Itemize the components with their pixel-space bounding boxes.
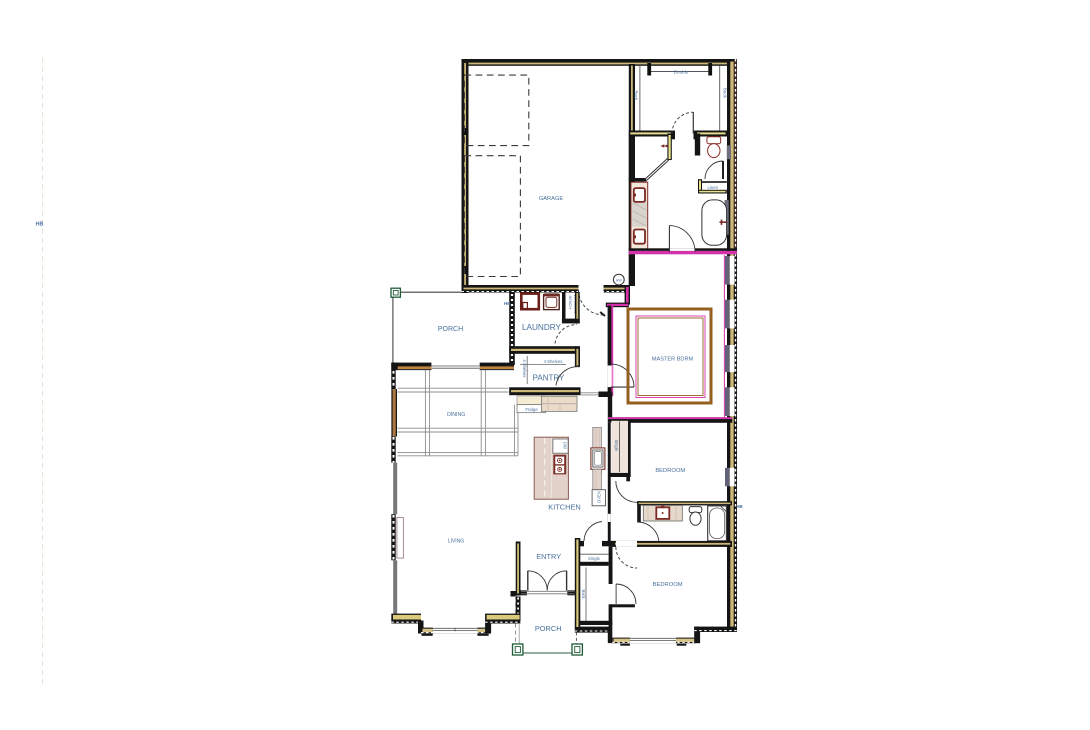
svg-text:Back: Back xyxy=(634,91,639,102)
svg-text:DW: DW xyxy=(563,442,568,449)
svg-text:4 Shelves: 4 Shelves xyxy=(544,359,563,364)
svg-text:BEDROOM: BEDROOM xyxy=(653,582,683,588)
svg-text:BEDROOM: BEDROOM xyxy=(655,468,685,474)
svg-text:Single: Single xyxy=(588,556,601,561)
svg-text:PORCH: PORCH xyxy=(535,624,562,633)
svg-text:Linen: Linen xyxy=(708,185,719,190)
svg-text:HB: HB xyxy=(736,504,742,509)
svg-text:ENTRY: ENTRY xyxy=(536,552,561,561)
svg-text:DINING: DINING xyxy=(447,412,465,418)
svg-text:HB: HB xyxy=(36,222,44,228)
svg-text:KITCHEN: KITCHEN xyxy=(548,502,580,511)
svg-text:LIVING: LIVING xyxy=(448,538,465,544)
svg-text:Back: Back xyxy=(722,88,727,99)
svg-text:OVEN: OVEN xyxy=(597,491,602,503)
svg-text:GARAGE: GARAGE xyxy=(539,196,564,202)
svg-text:BENCH: BENCH xyxy=(568,296,573,310)
svg-text:HB: HB xyxy=(504,301,511,306)
svg-text:Fridge: Fridge xyxy=(525,407,538,412)
svg-text:Back: Back xyxy=(581,590,586,600)
svg-text:HW: HW xyxy=(616,278,623,282)
svg-text:PORCH: PORCH xyxy=(438,326,463,333)
svg-text:Double: Double xyxy=(674,70,689,75)
svg-text:LAUNDRY: LAUNDRY xyxy=(522,323,562,332)
svg-text:4 Shelves: 4 Shelves xyxy=(522,360,527,378)
svg-text:Single: Single xyxy=(614,440,619,452)
svg-text:MASTER BDRM: MASTER BDRM xyxy=(652,357,694,363)
